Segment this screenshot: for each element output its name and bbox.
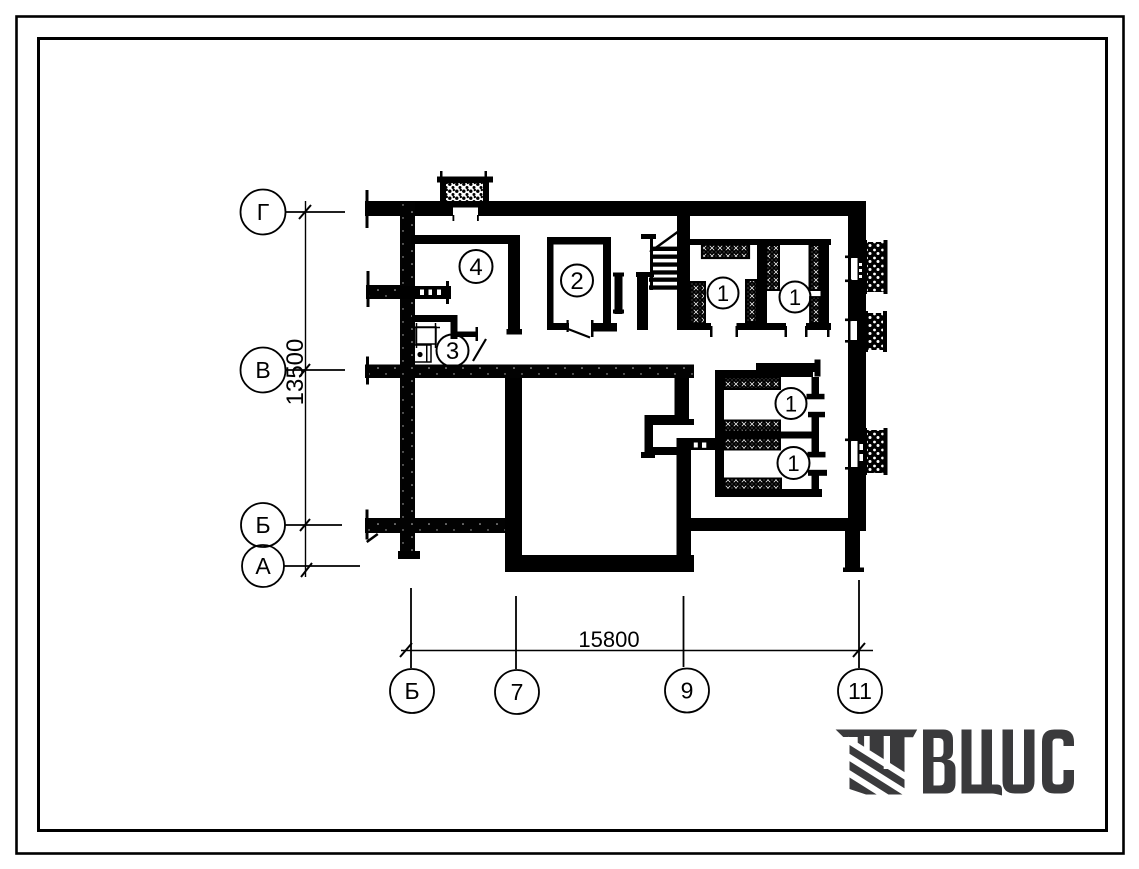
svg-text:Б: Б: [404, 678, 419, 704]
svg-text:1: 1: [717, 281, 729, 306]
svg-text:Б: Б: [255, 512, 270, 538]
svg-text:А: А: [255, 553, 271, 579]
svg-text:15800: 15800: [578, 627, 639, 652]
svg-text:1: 1: [787, 451, 799, 476]
svg-text:9: 9: [681, 678, 694, 704]
svg-text:11: 11: [848, 678, 872, 704]
svg-text:1: 1: [785, 392, 797, 417]
svg-text:4: 4: [469, 254, 482, 281]
svg-text:7: 7: [511, 679, 524, 705]
svg-text:1: 1: [789, 285, 801, 310]
svg-text:3: 3: [446, 338, 459, 365]
svg-text:Г: Г: [257, 199, 270, 225]
svg-text:В: В: [255, 357, 270, 383]
svg-text:13500: 13500: [282, 339, 309, 406]
svg-text:2: 2: [570, 268, 583, 295]
